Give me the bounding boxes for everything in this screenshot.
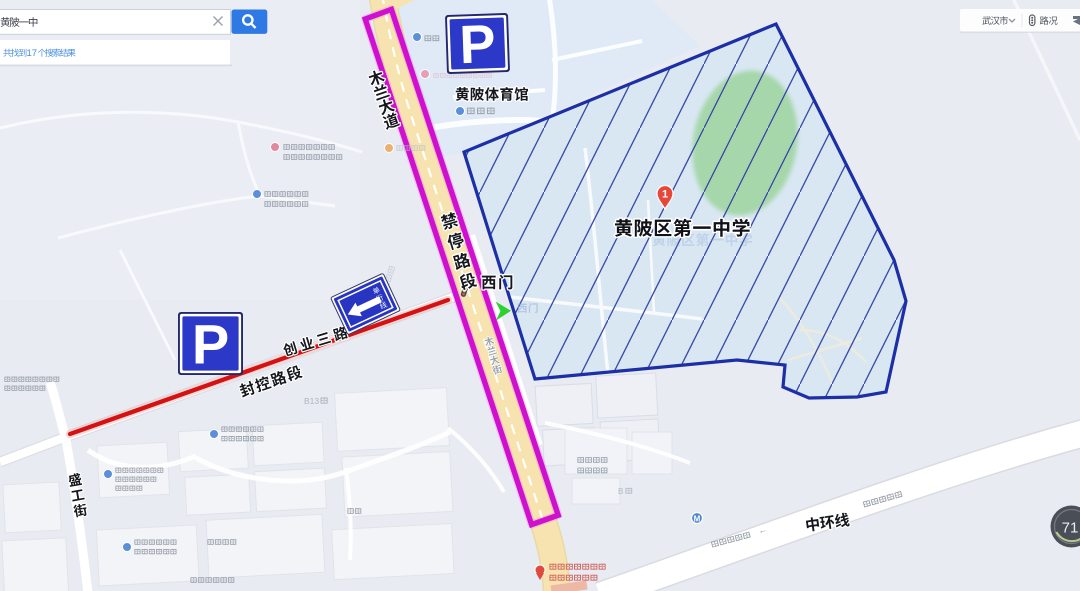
svg-text:1: 1 xyxy=(662,189,668,201)
svg-text:P: P xyxy=(458,14,496,75)
svg-text:B13: B13 xyxy=(304,396,319,406)
svg-text:M: M xyxy=(694,515,701,524)
svg-text:P: P xyxy=(192,312,229,375)
svg-text:71: 71 xyxy=(1062,520,1079,537)
svg-text:17: 17 xyxy=(27,48,38,59)
svg-text:B: B xyxy=(618,487,623,496)
